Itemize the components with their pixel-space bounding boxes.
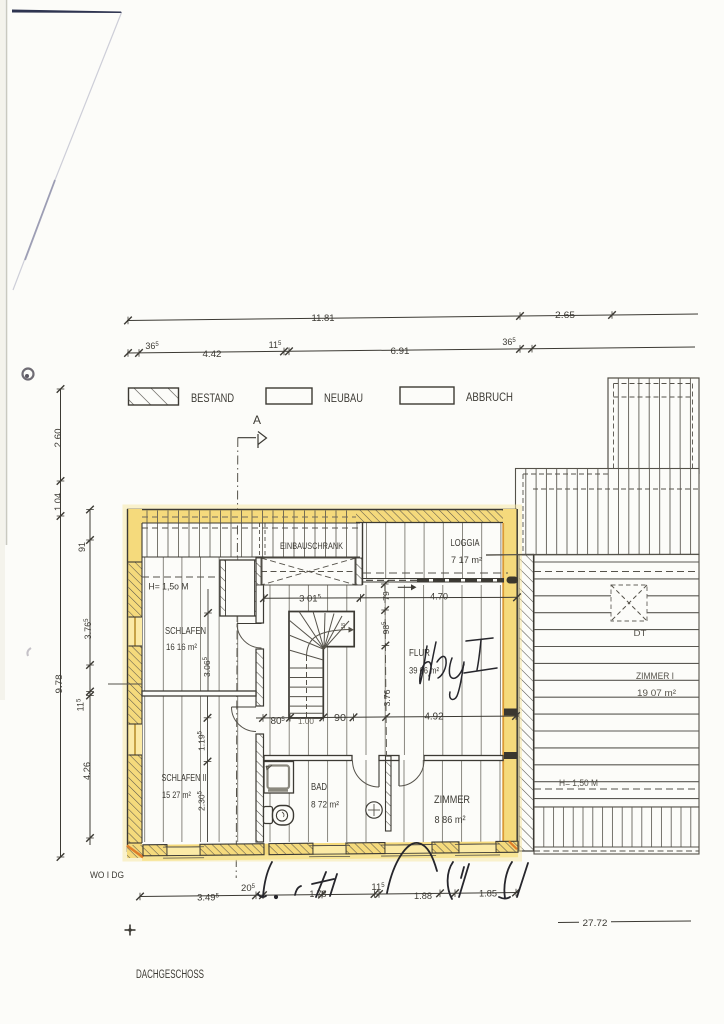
svg-text:6.91: 6.91 xyxy=(391,346,410,356)
svg-text:18: 18 xyxy=(341,623,347,629)
svg-text:BAD: BAD xyxy=(311,782,327,793)
svg-text:9.78: 9.78 xyxy=(54,675,65,694)
svg-text:ABBRUCH: ABBRUCH xyxy=(466,390,513,404)
svg-text:4.70: 4.70 xyxy=(430,592,448,603)
svg-text:15 27 m²: 15 27 m² xyxy=(162,790,191,801)
svg-text:LOGGIA: LOGGIA xyxy=(451,538,480,549)
svg-text:27.72: 27.72 xyxy=(583,918,608,929)
svg-text:7 17 m²: 7 17 m² xyxy=(451,555,482,565)
svg-text:19 07 m²: 19 07 m² xyxy=(637,688,676,699)
svg-text:DACHGESCHOSS: DACHGESCHOSS xyxy=(136,969,204,981)
svg-text:DT: DT xyxy=(634,628,647,638)
svg-text:91: 91 xyxy=(77,542,87,552)
svg-text:4.42: 4.42 xyxy=(203,349,222,359)
svg-text:ZIMMER I: ZIMMER I xyxy=(636,671,674,682)
svg-text:11.81: 11.81 xyxy=(312,313,335,323)
svg-text:1.00: 1.00 xyxy=(298,716,314,726)
svg-text:90: 90 xyxy=(334,713,346,724)
svg-text:A: A xyxy=(253,413,261,427)
svg-text:80: 80 xyxy=(270,716,282,727)
svg-text:1.85: 1.85 xyxy=(479,889,497,900)
svg-text:4.26: 4.26 xyxy=(82,762,93,780)
svg-text:4.92: 4.92 xyxy=(425,712,444,723)
svg-text:2.60: 2.60 xyxy=(53,429,64,448)
svg-text:BESTAND: BESTAND xyxy=(191,391,234,405)
svg-text:79: 79 xyxy=(381,591,391,601)
svg-text:SCHLAFEN: SCHLAFEN xyxy=(165,625,206,637)
svg-text:2.65: 2.65 xyxy=(555,310,575,320)
svg-text:WO I DG: WO I DG xyxy=(90,870,124,881)
svg-text:H= 1,5o M: H= 1,5o M xyxy=(149,582,189,593)
svg-text:ZIMMER: ZIMMER xyxy=(434,794,470,806)
svg-text:16 16 m²: 16 16 m² xyxy=(166,642,197,653)
svg-text:EINBAUSCHRANK: EINBAUSCHRANK xyxy=(280,541,344,552)
svg-text:1.04: 1.04 xyxy=(53,493,64,511)
svg-text:H= 1,50 M: H= 1,50 M xyxy=(559,778,598,789)
svg-text:NEUBAU: NEUBAU xyxy=(324,391,363,405)
svg-text:1.88: 1.88 xyxy=(414,891,432,902)
svg-text:8 72 m²: 8 72 m² xyxy=(311,800,339,811)
svg-text:3.76: 3.76 xyxy=(382,689,392,706)
svg-text:SCHLAFEN II: SCHLAFEN II xyxy=(162,772,207,784)
svg-text:8 86 m²: 8 86 m² xyxy=(435,814,466,826)
